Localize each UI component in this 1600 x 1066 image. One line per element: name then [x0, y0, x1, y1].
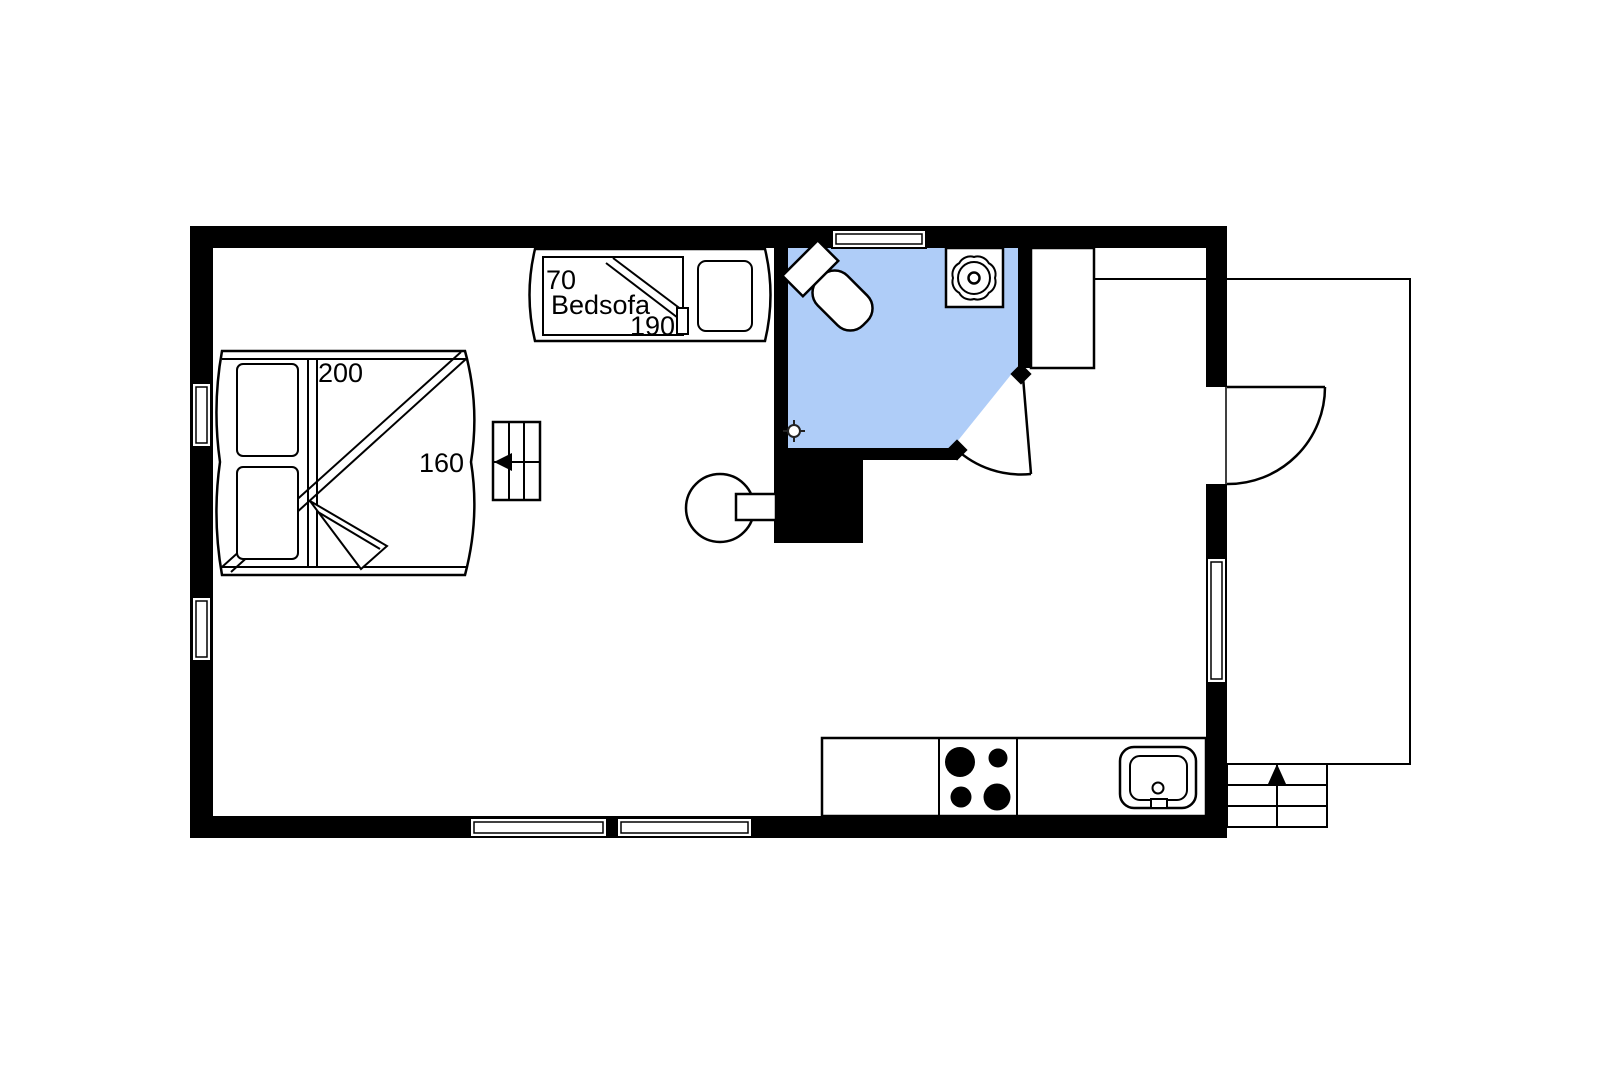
window-left-2 [192, 597, 211, 661]
bathroom-door-arc [956, 449, 1031, 475]
loft-ladder-icon [493, 422, 540, 500]
bathroom-door-leaf [1023, 377, 1031, 474]
burner [951, 787, 972, 808]
bed-width-label: 160 [419, 448, 464, 478]
bedsofa-length-label: 190 [630, 311, 675, 341]
floor-plan-canvas: 200 160 70 Bedsofa 190 [0, 0, 1600, 1066]
bed-length-label: 200 [318, 358, 363, 388]
wardrobe-cabinet [1031, 248, 1094, 368]
window-left-1 [192, 383, 211, 447]
utility-block [774, 448, 958, 543]
entrance-steps [1227, 764, 1327, 827]
bathroom-wall-right [1018, 248, 1031, 368]
wall-top [190, 226, 1227, 248]
bedsofa-fold-bar [677, 308, 688, 334]
kitchen-sink-icon [1120, 747, 1196, 808]
window-right [1207, 558, 1226, 683]
table-support [736, 494, 776, 520]
burner [945, 747, 975, 777]
wall-right [1206, 226, 1227, 838]
floor-plan-drawing: 200 160 70 Bedsofa 190 [0, 0, 1600, 1066]
wall-left [190, 226, 213, 838]
burner [984, 784, 1011, 811]
entrance-door [1205, 387, 1325, 484]
round-table [686, 474, 776, 542]
window-bottom-1 [470, 818, 607, 837]
window-top [832, 230, 926, 248]
bedsofa-pillow [698, 261, 752, 331]
double-bed: 200 160 [216, 351, 474, 575]
shower-drain-icon [946, 248, 1003, 307]
sink-tap [1151, 799, 1167, 808]
burner [989, 749, 1008, 768]
pillow [237, 364, 298, 456]
bedsofa: 70 Bedsofa 190 [530, 249, 771, 341]
entrance-door-arc [1227, 387, 1325, 484]
pillow [237, 467, 298, 559]
window-bottom-2 [617, 818, 752, 837]
terrace-outline [1094, 279, 1410, 764]
